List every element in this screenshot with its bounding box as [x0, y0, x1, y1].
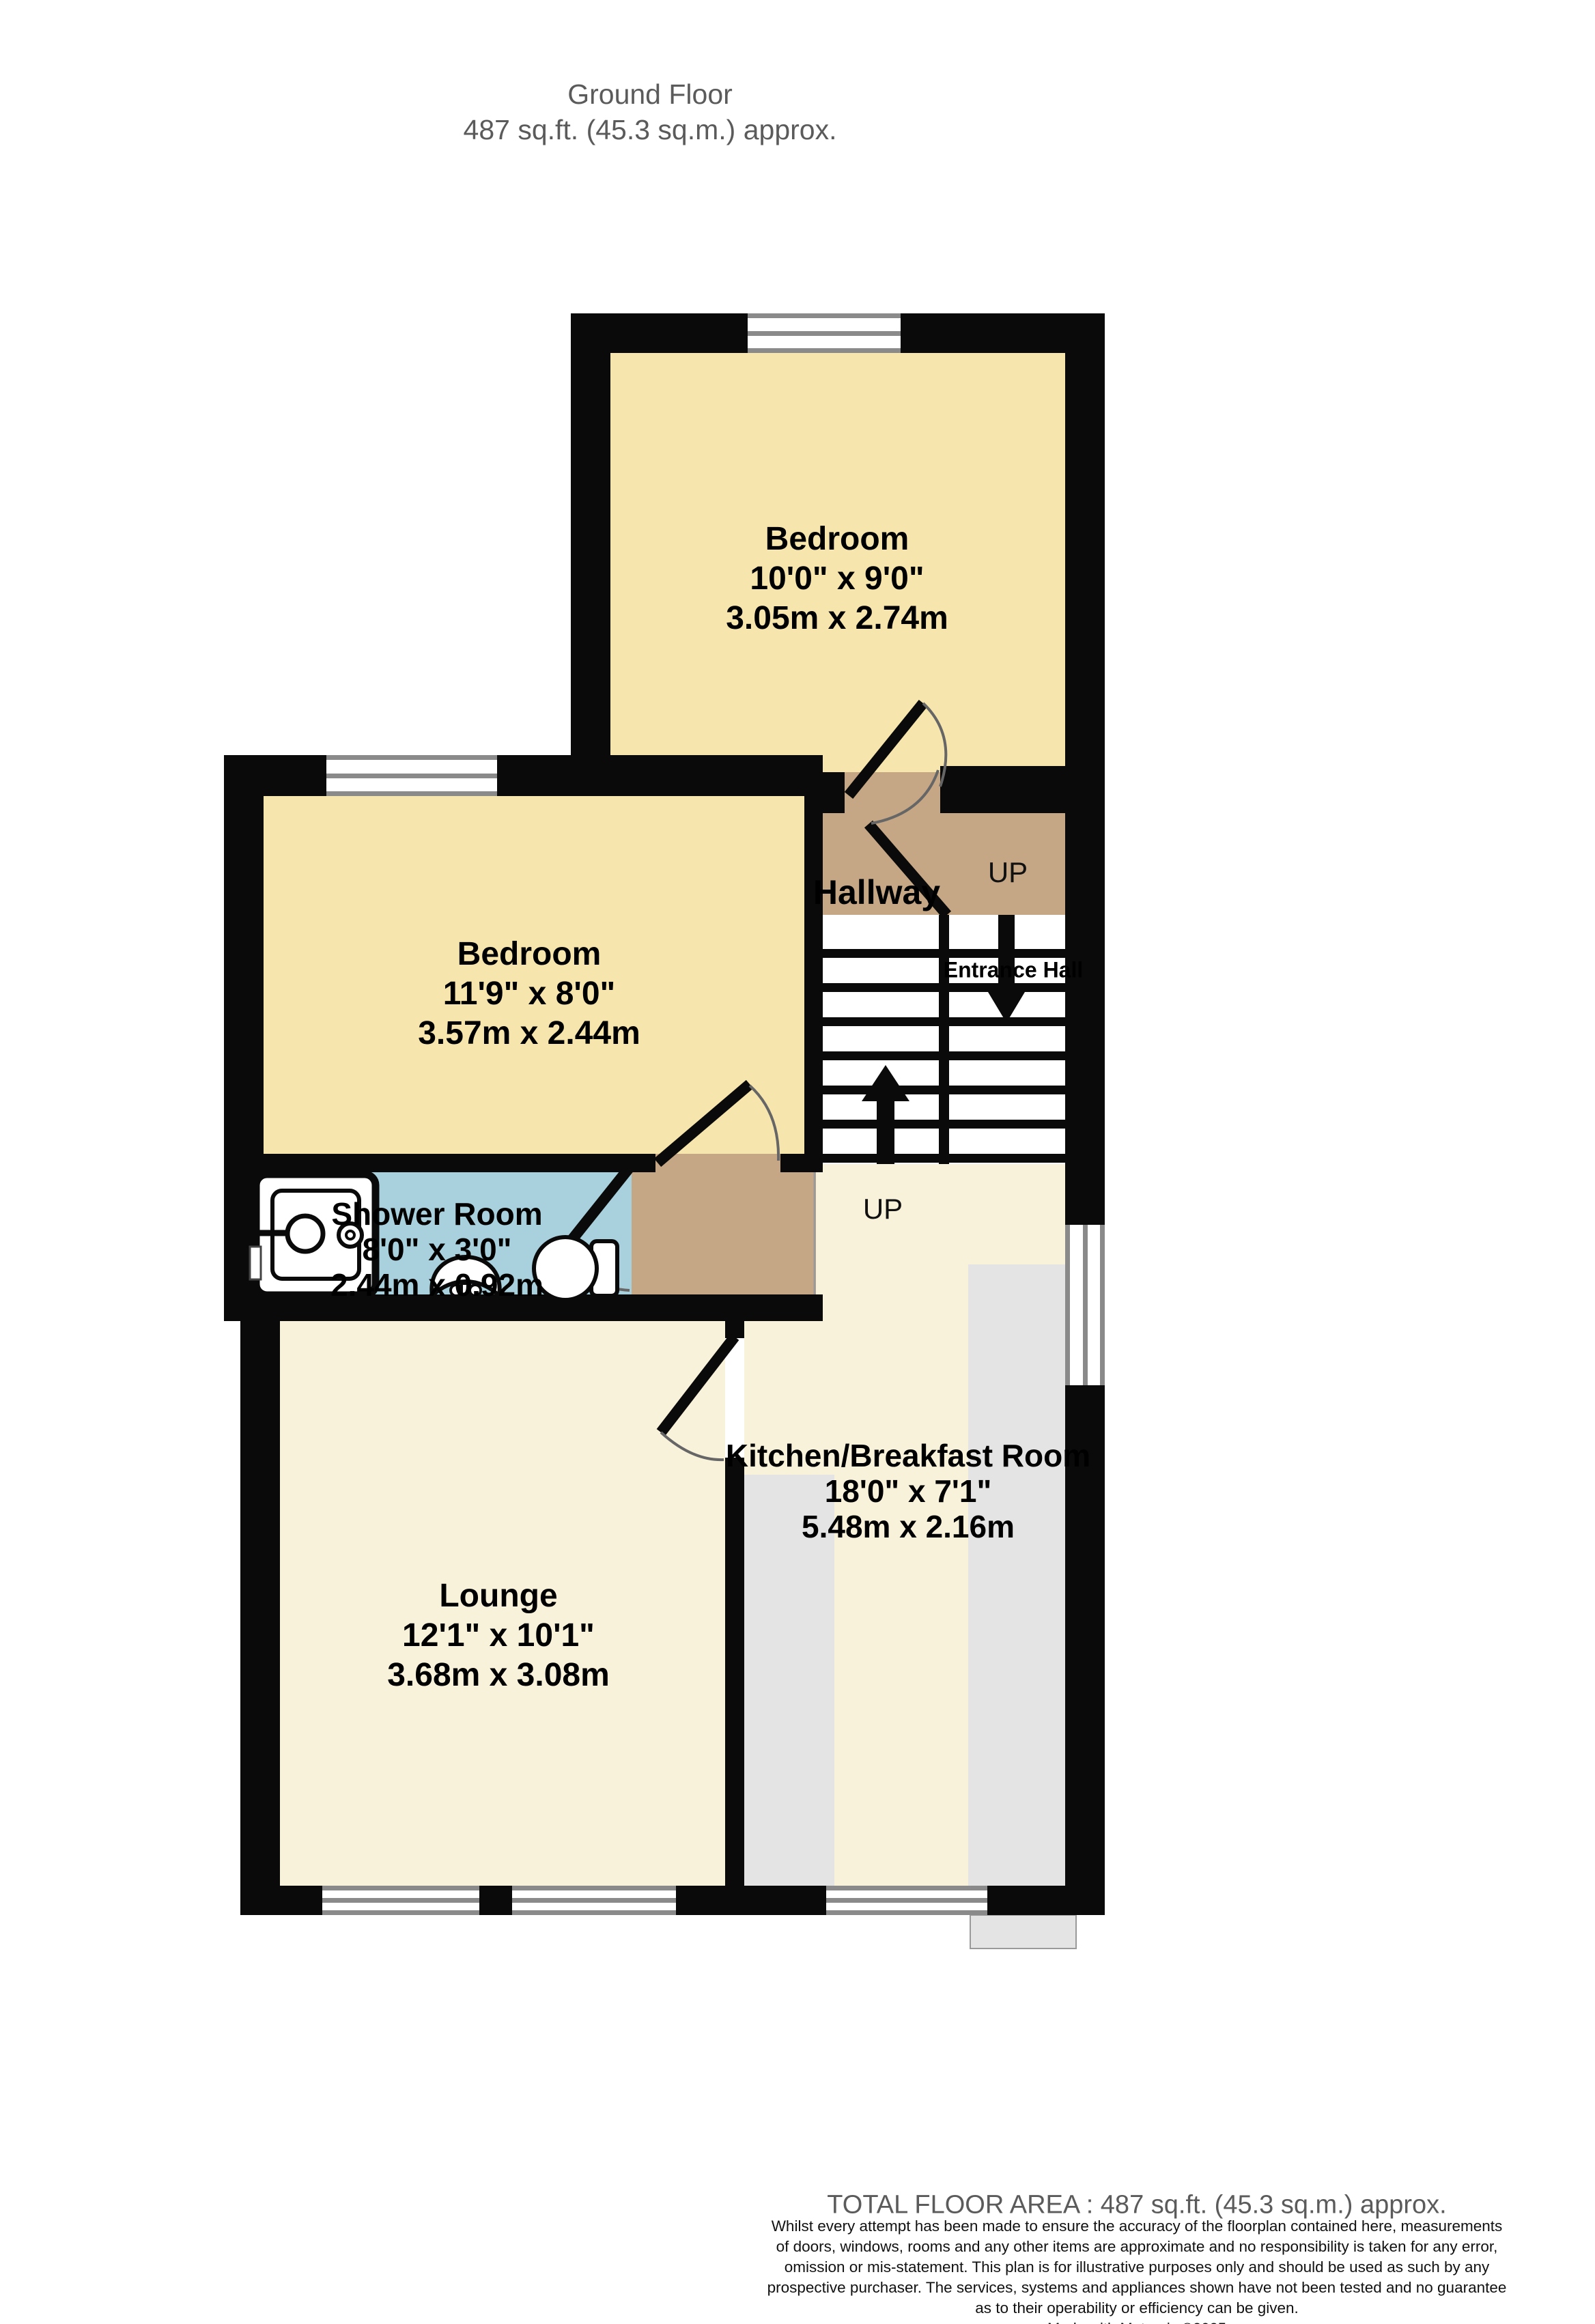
floorplan-page: Ground Floor 487 sq.ft. (45.3 sq.m.) app…: [0, 0, 1595, 2324]
window: [1065, 1225, 1105, 1385]
room-name: Lounge: [387, 1576, 610, 1616]
wall: [676, 1886, 826, 1915]
room-label-lounge: Lounge 12'1" x 10'1" 3.68m x 3.08m: [387, 1576, 610, 1695]
room-size-metric: 3.57m x 2.44m: [418, 1014, 640, 1053]
window: [512, 1886, 676, 1915]
window: [826, 1886, 987, 1915]
disclaimer-line: of doors, windows, rooms and any other i…: [767, 2237, 1507, 2257]
outside-step: [970, 1915, 1076, 1949]
kitchen-counter-right: [968, 1264, 1065, 1886]
disclaimer-line: Whilst every attempt has been made to en…: [767, 2216, 1507, 2237]
room-size-imperial: 8'0" x 3'0": [330, 1232, 544, 1267]
window: [326, 755, 497, 796]
room-size-imperial: 18'0" x 7'1": [726, 1473, 1090, 1509]
wall: [823, 772, 845, 813]
wall-door-stub: [725, 1321, 744, 1338]
stair-divider: [939, 915, 949, 1164]
room-size-metric: 2.44m x 0.92m: [330, 1267, 544, 1303]
floor-landing: [632, 1154, 816, 1297]
room-name: Kitchen/Breakfast Room: [726, 1438, 1090, 1473]
wall: [1065, 313, 1105, 1915]
disclaimer-line: as to their operability or efficiency ca…: [767, 2298, 1507, 2319]
room-size-imperial: 11'9" x 8'0": [418, 974, 640, 1014]
stairs-up-label-kitchen: UP: [863, 1193, 903, 1225]
room-size-metric: 5.48m x 2.16m: [726, 1509, 1090, 1544]
wall: [240, 1321, 280, 1915]
stairs-up-label-hallway: UP: [988, 856, 1028, 889]
room-label-bedroom-top: Bedroom 10'0" x 9'0" 3.05m x 2.74m: [726, 520, 948, 638]
wall: [780, 1154, 823, 1172]
room-name: Shower Room: [330, 1196, 544, 1232]
wall: [240, 1886, 322, 1915]
room-size-metric: 3.68m x 3.08m: [387, 1656, 610, 1695]
room-label-hallway: Hallway: [813, 873, 940, 912]
toilet-icon: [534, 1237, 617, 1300]
wall: [804, 796, 823, 1167]
wall: [571, 313, 610, 796]
wall: [940, 766, 1065, 813]
wall: [479, 1886, 512, 1915]
wall: [901, 313, 1065, 353]
floorplan-canvas: [0, 0, 1595, 2324]
page-title-line: Ground Floor: [464, 76, 837, 112]
room-size-metric: 3.05m x 2.74m: [726, 599, 948, 638]
disclaimer-line: omission or mis-statement. This plan is …: [767, 2257, 1507, 2278]
wall: [224, 1154, 655, 1172]
page-title: Ground Floor 487 sq.ft. (45.3 sq.m.) app…: [464, 76, 837, 147]
wall: [497, 755, 823, 796]
window: [322, 1886, 479, 1915]
disclaimer: Whilst every attempt has been made to en…: [767, 2216, 1507, 2324]
disclaimer-line: prospective purchaser. The services, sys…: [767, 2278, 1507, 2298]
wall: [987, 1886, 1105, 1915]
metropix-credit: Made with Metropix ©2025: [767, 2319, 1507, 2324]
room-name: Bedroom: [726, 520, 948, 559]
room-name: Bedroom: [418, 935, 640, 974]
window: [748, 313, 901, 353]
room-size-imperial: 12'1" x 10'1": [387, 1616, 610, 1656]
page-subtitle: 487 sq.ft. (45.3 sq.m.) approx.: [464, 112, 837, 147]
room-size-imperial: 10'0" x 9'0": [726, 559, 948, 599]
room-label-shower-room: Shower Room 8'0" x 3'0" 2.44m x 0.92m: [330, 1196, 544, 1303]
room-label-entrance-hall: Entrance Hall: [944, 958, 1084, 983]
room-label-kitchen: Kitchen/Breakfast Room 18'0" x 7'1" 5.48…: [726, 1438, 1090, 1544]
room-label-bedroom-left: Bedroom 11'9" x 8'0" 3.57m x 2.44m: [418, 935, 640, 1053]
